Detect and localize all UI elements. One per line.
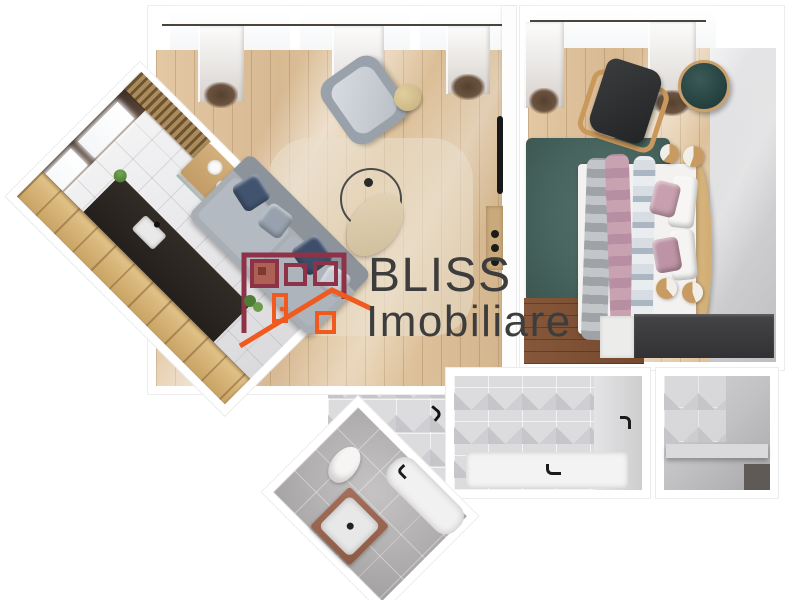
stool-bottom-2 — [682, 282, 703, 303]
living-bedroom-divider-wall — [502, 6, 516, 394]
stool-top-1 — [660, 144, 679, 163]
drain-handle-icon — [546, 464, 561, 475]
stool-bottom-1 — [656, 278, 677, 299]
round-side-table — [678, 60, 730, 112]
storage-tiles — [664, 376, 726, 442]
bed — [578, 164, 706, 334]
living-curtain-3 — [446, 26, 490, 94]
bed-bench — [600, 316, 634, 358]
entry-hall — [446, 368, 650, 498]
floor-lamp-head — [364, 178, 373, 187]
apartment-render: BLISS Imobiliare — [0, 0, 800, 600]
speaker-knobs — [491, 230, 499, 274]
wall-hook-icon — [620, 416, 631, 429]
storage-room — [656, 368, 778, 498]
storage-step — [666, 444, 768, 458]
stool-top-2 — [683, 146, 704, 167]
wardrobe-dark — [634, 314, 774, 358]
tv-screen — [497, 116, 503, 194]
pouf — [394, 84, 421, 111]
living-curtain-1 — [198, 26, 244, 102]
bedroom-curtain-left — [524, 22, 564, 108]
bed-pillow-pink-2 — [651, 236, 683, 274]
storage-dark-corner — [744, 464, 770, 490]
